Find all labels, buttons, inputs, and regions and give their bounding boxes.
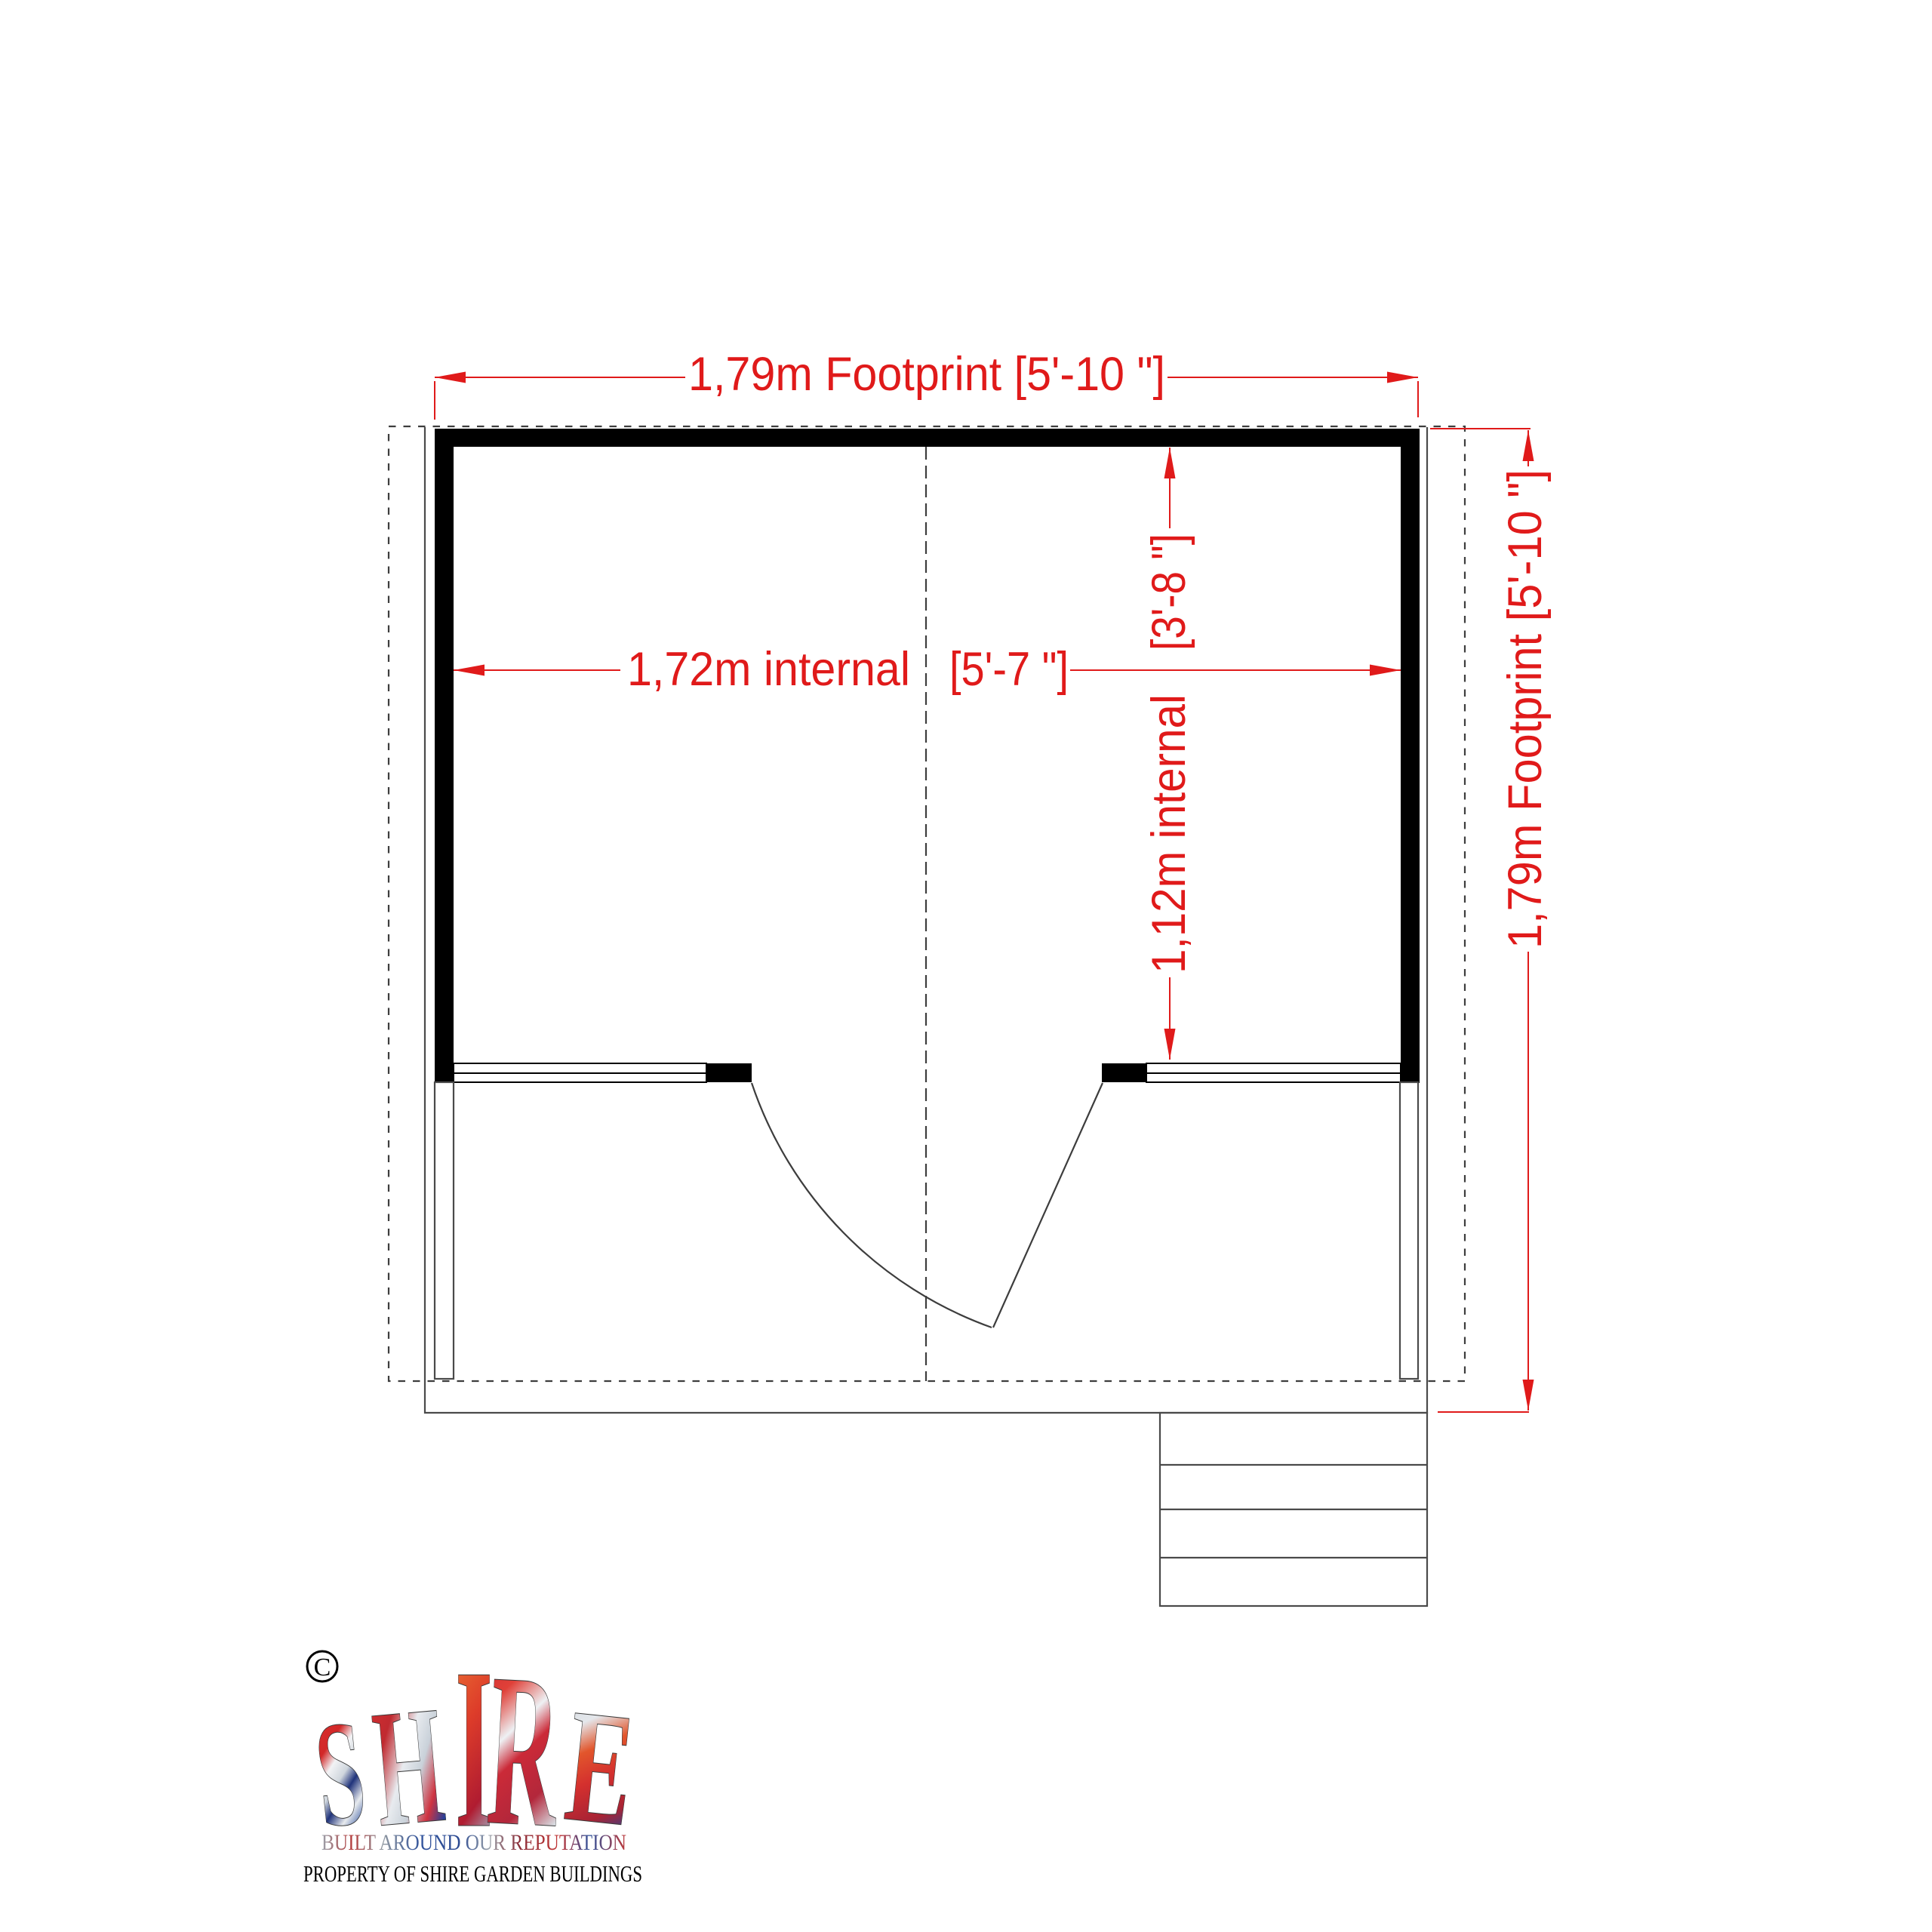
svg-text:PROPERTY OF SHIRE GARDEN BUILD: PROPERTY OF SHIRE GARDEN BUILDINGS [303,1860,642,1887]
svg-text:1,12m internal: 1,12m internal [1143,694,1195,974]
svg-text:C: C [314,1654,331,1681]
svg-text:BUILT AROUND OUR REPUTATION: BUILT AROUND OUR REPUTATION [321,1830,626,1855]
svg-text:1,72m internal: 1,72m internal [627,643,910,696]
svg-text:[3'-8 "]: [3'-8 "] [1143,534,1195,651]
svg-text:1,79m Footprint [5'-10 "]: 1,79m Footprint [5'-10 "] [688,348,1165,401]
svg-text:[5'-7 "]: [5'-7 "] [949,643,1069,696]
svg-text:1,79m Footprint [5'-10 "]: 1,79m Footprint [5'-10 "] [1499,469,1552,949]
